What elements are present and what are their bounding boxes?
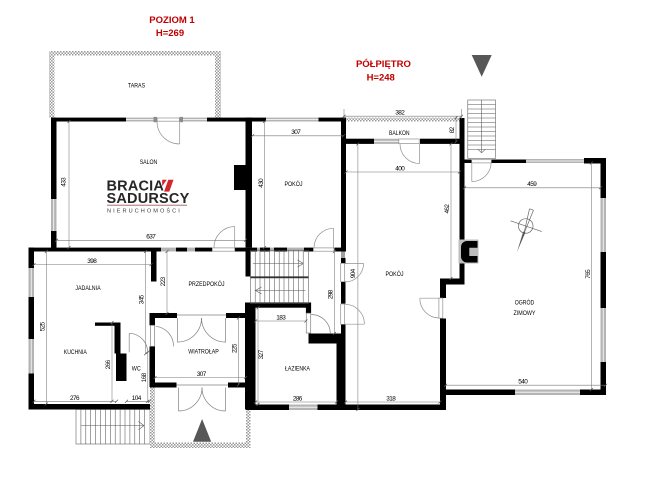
svg-text:904: 904 — [350, 268, 357, 278]
svg-text:307: 307 — [291, 129, 301, 136]
svg-text:637: 637 — [146, 234, 156, 241]
svg-text:223: 223 — [160, 276, 167, 286]
svg-text:KUCHNIA: KUCHNIA — [64, 349, 88, 356]
svg-text:183: 183 — [276, 314, 286, 321]
svg-text:318: 318 — [386, 395, 396, 402]
svg-text:298: 298 — [327, 289, 334, 299]
svg-text:WIATROŁAP: WIATROŁAP — [188, 349, 219, 356]
svg-text:BALKON: BALKON — [389, 130, 410, 137]
svg-text:WC: WC — [132, 366, 141, 373]
svg-text:433: 433 — [61, 177, 68, 187]
svg-text:459: 459 — [527, 181, 537, 188]
svg-text:525: 525 — [40, 321, 47, 331]
svg-text:286: 286 — [293, 395, 303, 402]
svg-text:382: 382 — [395, 110, 405, 117]
svg-text:327: 327 — [258, 349, 265, 359]
svg-text:276: 276 — [70, 395, 80, 402]
svg-text:307: 307 — [197, 371, 207, 378]
svg-text:NIERUCHOMOŚCI: NIERUCHOMOŚCI — [107, 206, 182, 214]
svg-text:OGRÓD: OGRÓD — [515, 298, 535, 307]
svg-text:SADURSCY: SADURSCY — [107, 191, 190, 207]
svg-text:104: 104 — [132, 395, 142, 402]
svg-text:266: 266 — [105, 359, 112, 369]
svg-text:POKÓJ: POKÓJ — [386, 269, 404, 278]
svg-text:H=269: H=269 — [156, 28, 184, 39]
svg-text:JADALNIA: JADALNIA — [75, 285, 101, 292]
svg-text:765: 765 — [585, 269, 592, 279]
svg-text:400: 400 — [395, 165, 405, 172]
svg-text:SALON: SALON — [140, 159, 158, 166]
svg-text:H=248: H=248 — [367, 73, 395, 84]
svg-text:ŁAZIENKA: ŁAZIENKA — [285, 366, 311, 373]
svg-text:TARAS: TARAS — [128, 83, 145, 90]
svg-text:540: 540 — [518, 379, 528, 386]
svg-text:225: 225 — [231, 343, 238, 353]
svg-text:462: 462 — [444, 204, 451, 214]
svg-text:POKÓJ: POKÓJ — [285, 179, 303, 188]
svg-text:PÓŁPIĘTRO: PÓŁPIĘTRO — [356, 58, 411, 70]
svg-text:168: 168 — [141, 372, 148, 382]
svg-text:ZIMOWY: ZIMOWY — [514, 310, 537, 317]
svg-text:PRZEDPOKÓJ: PRZEDPOKÓJ — [189, 279, 225, 288]
svg-text:82: 82 — [449, 126, 456, 133]
svg-text:398: 398 — [87, 258, 97, 265]
svg-text:430: 430 — [258, 178, 265, 188]
svg-text:POZIOM 1: POZIOM 1 — [149, 15, 195, 26]
svg-text:345: 345 — [139, 294, 146, 304]
